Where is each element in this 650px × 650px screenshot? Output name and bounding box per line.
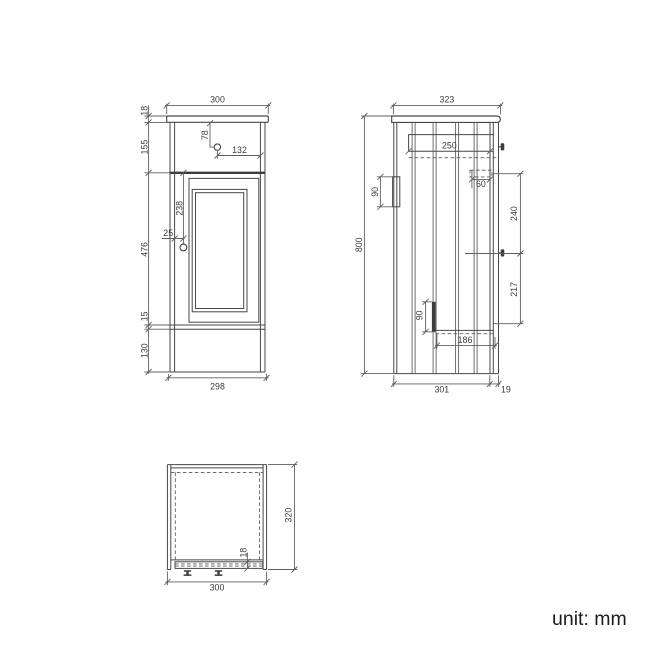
dim-overall-height: 800: [354, 237, 364, 252]
door-front: [189, 178, 259, 322]
dim-countertop-thickness: 18: [139, 106, 149, 116]
dim-door-knob-drop: 238: [175, 201, 185, 216]
lower-knob-side-icon: [501, 249, 505, 256]
door-knob-icon: [180, 244, 187, 251]
plan-hidden-lines: [171, 472, 263, 566]
dim-front-base-width: 298: [210, 381, 225, 391]
hinge-plate: [432, 302, 436, 332]
dim-plan-width: 300: [210, 583, 225, 593]
dim-carcass-depth: 301: [434, 384, 449, 394]
dim-plinth-height: 130: [139, 343, 149, 358]
adjustable-feet-icons: [184, 570, 223, 576]
plan-dimension-lines: [166, 465, 298, 586]
dim-side-top-depth: 323: [440, 95, 455, 105]
carcass-front-lines: [170, 122, 265, 372]
technical-drawing-page: 300 18 155 78 132 238 25 476 15 130 298: [0, 0, 650, 650]
carcass-side-lines: [394, 122, 499, 373]
upper-knob-icon: [214, 144, 220, 150]
front-dimension-lines: [144, 104, 270, 381]
dim-hinge-height: 90: [414, 310, 424, 320]
runner-box: [470, 170, 492, 177]
unit-label: unit: mm: [552, 608, 627, 630]
dim-lower-span: 217: [509, 282, 519, 297]
dim-shelf-depth: 186: [458, 335, 473, 345]
dim-bracket-height: 90: [370, 187, 380, 197]
front-dimension-ticks: [146, 102, 272, 380]
dim-internal-width: 250: [442, 140, 457, 150]
dim-upper-section: 155: [139, 140, 149, 155]
door-panel-inner: [196, 193, 244, 309]
carcass-plan-lines: [167, 465, 266, 570]
countertop-side: [392, 116, 501, 122]
side-view: 323 800 250 90 60 240 217 90 186 301 19: [354, 95, 524, 395]
door-panel-outer: [192, 189, 247, 311]
dim-door-thickness-side: 19: [501, 384, 511, 394]
dim-knob-from-right: 132: [232, 145, 247, 155]
plan-view: 320 300 18: [164, 462, 297, 593]
dim-door-thickness-plan: 18: [239, 548, 249, 558]
dim-upper-span: 240: [509, 206, 519, 221]
countertop-front: [167, 116, 269, 122]
door-plan-slab: [175, 562, 263, 569]
front-view: 300 18 155 78 132 238 25 476 15 130 298: [139, 95, 271, 392]
unit-note: unit: mm: [552, 608, 627, 630]
dim-front-top-width: 300: [210, 95, 225, 105]
dim-runner-length: 60: [476, 179, 486, 189]
dim-knob-from-top: 78: [200, 130, 210, 140]
drawing-svg: 300 18 155 78 132 238 25 476 15 130 298: [0, 0, 650, 650]
dim-overall-depth: 320: [283, 508, 293, 523]
upper-knob-side-icon: [501, 143, 505, 150]
dim-door-section: 476: [139, 242, 149, 257]
dim-door-knob-inset: 25: [163, 228, 173, 238]
dim-bottom-rail: 15: [139, 311, 149, 321]
